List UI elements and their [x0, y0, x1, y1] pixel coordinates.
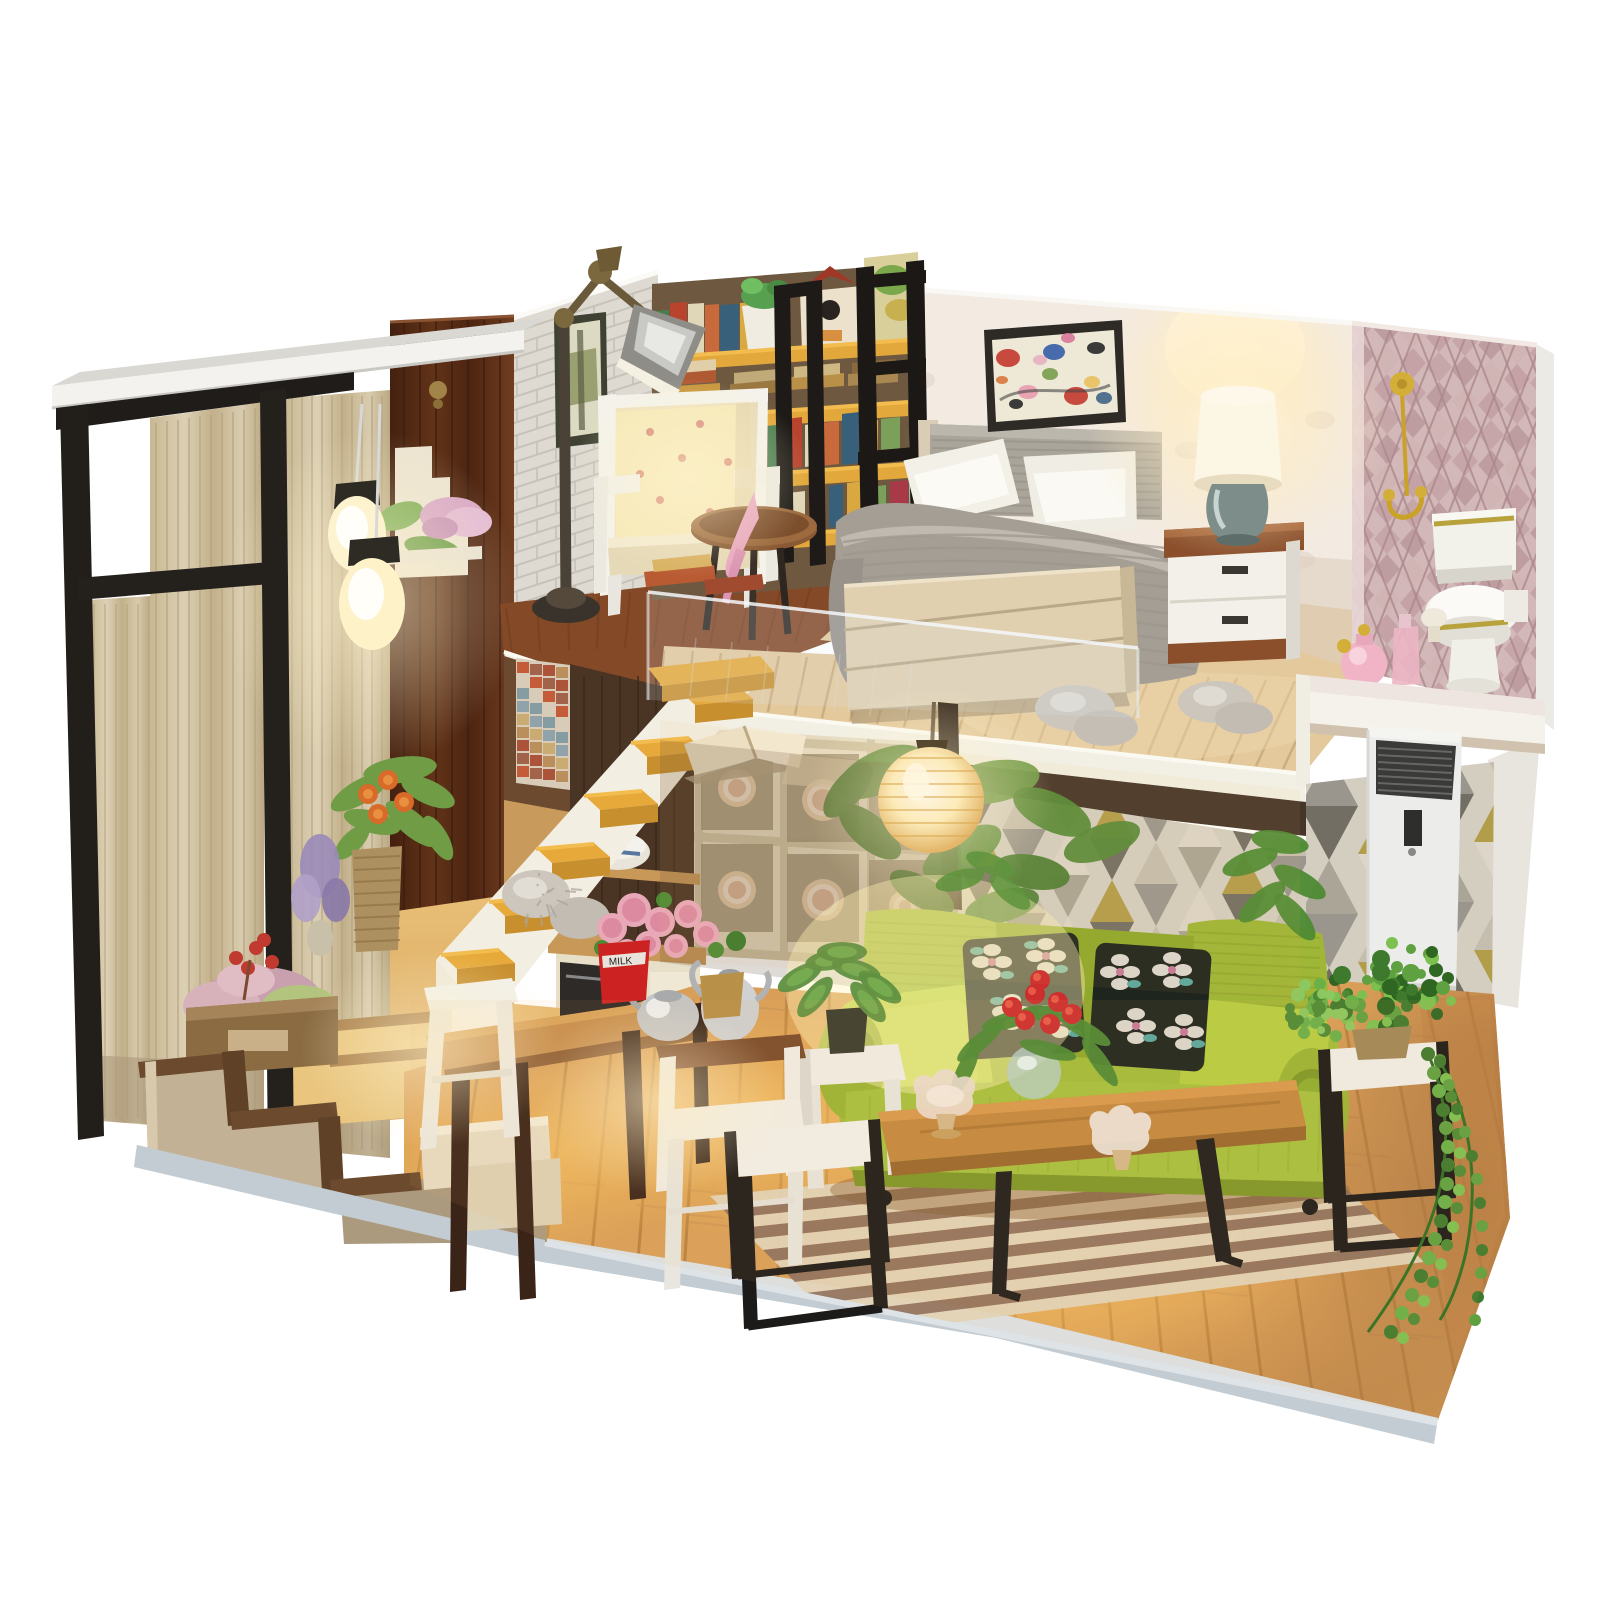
svg-text:MILK: MILK	[609, 956, 633, 968]
